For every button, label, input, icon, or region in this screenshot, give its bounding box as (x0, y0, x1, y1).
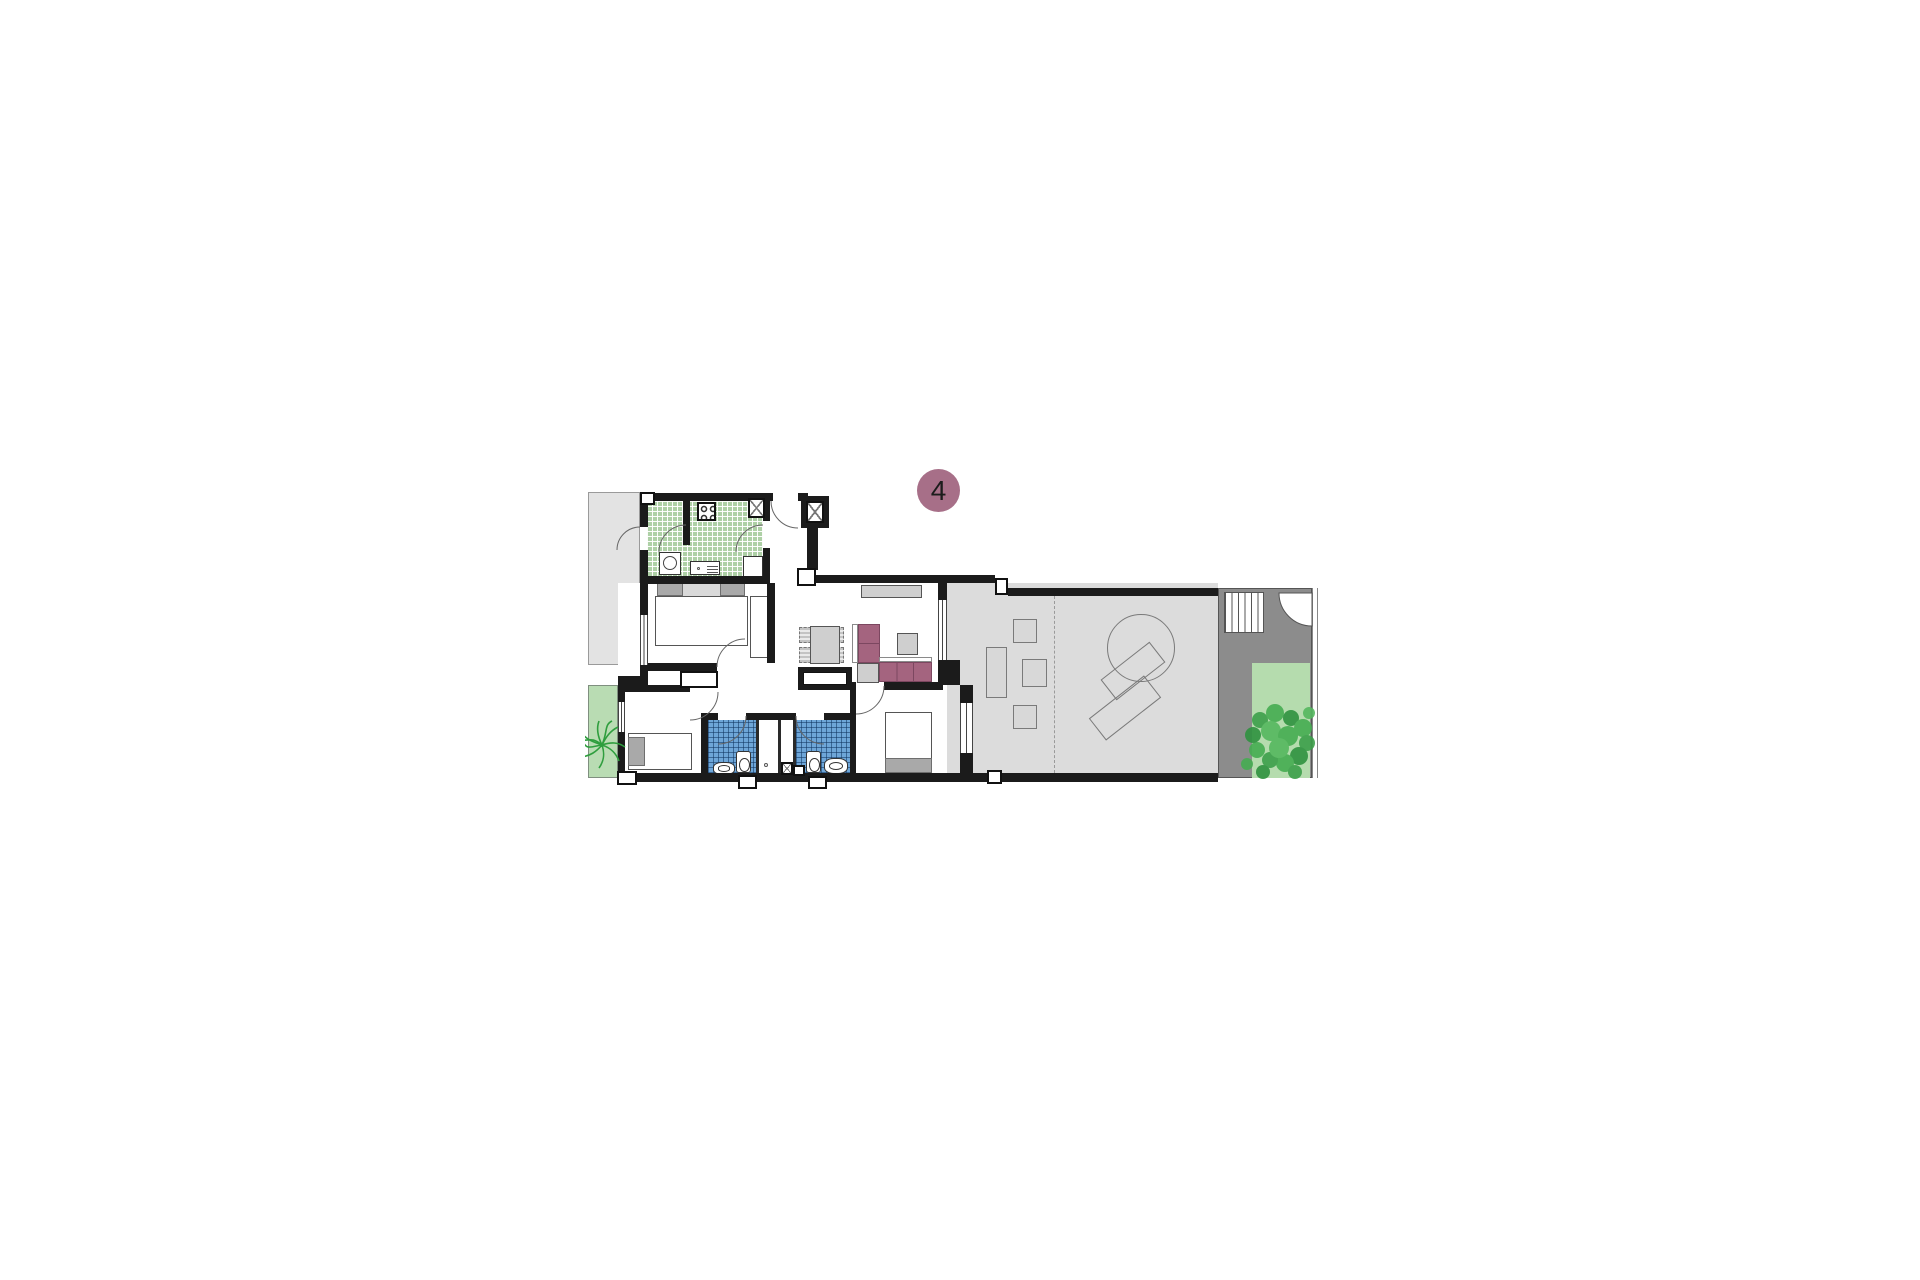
bath-cabinet (793, 765, 805, 776)
toilet (736, 751, 751, 773)
terrace-chair (1013, 705, 1037, 729)
terrace-divider (1054, 596, 1055, 773)
floor-plan (585, 488, 1317, 788)
window (640, 615, 648, 665)
wall (683, 493, 690, 545)
wall (756, 720, 759, 773)
yard-border-strip (1312, 588, 1318, 778)
terrace-table (1022, 659, 1047, 687)
sofa (879, 662, 932, 682)
washing-machine (659, 552, 681, 575)
washbasin (824, 758, 848, 774)
shower-tray (781, 762, 793, 775)
sofa (858, 624, 880, 663)
wall (850, 690, 856, 773)
pillar (987, 770, 1002, 784)
wall (852, 682, 856, 690)
sofa-corner-ottoman (857, 663, 879, 683)
terrace-chair (1013, 619, 1037, 643)
window (960, 703, 973, 753)
page: 4 (0, 0, 1920, 1280)
kitchen-window (748, 498, 765, 518)
pillow (885, 758, 932, 773)
palm-patio (588, 685, 618, 778)
pillar (640, 492, 655, 505)
floor-drain (764, 763, 768, 767)
wall (640, 663, 717, 671)
wall (824, 713, 850, 720)
single-bed (885, 712, 932, 760)
wall (960, 685, 973, 703)
pillar (797, 568, 816, 586)
wall (708, 713, 718, 720)
wall (640, 576, 770, 584)
wall (807, 528, 818, 570)
double-bed-center (681, 583, 722, 596)
wall (884, 682, 943, 690)
dining-table (810, 626, 840, 664)
wall (746, 713, 796, 720)
wall (767, 583, 775, 663)
vent-shaft-window (806, 501, 824, 523)
exterior-unit (808, 776, 827, 789)
pillar (617, 771, 637, 785)
toilet (806, 751, 821, 773)
washer-drum-icon (663, 556, 677, 570)
kitchen-sink (690, 561, 720, 575)
faucet-icon (697, 567, 700, 570)
wall (701, 713, 708, 773)
terrace-bench (986, 647, 1007, 698)
pillow (628, 737, 645, 766)
wall (814, 575, 995, 583)
wall (1008, 588, 1218, 596)
double-bed (655, 596, 748, 646)
pillar (995, 578, 1008, 595)
wall (938, 583, 947, 600)
stairs (1224, 592, 1264, 633)
wall (618, 676, 648, 685)
wall (763, 548, 770, 584)
pillow (657, 583, 683, 596)
drainboard-icon (707, 564, 718, 573)
kitchen-counter (743, 556, 763, 577)
window (938, 600, 947, 660)
wall (618, 773, 1218, 782)
pillow (720, 583, 745, 596)
wall-niche (803, 672, 847, 685)
garden-patch (1252, 663, 1310, 778)
stove (697, 502, 716, 521)
wardrobe (750, 596, 768, 658)
exterior-unit (738, 775, 757, 789)
hall-closet (680, 671, 718, 688)
sideboard (861, 585, 922, 598)
coffee-table (897, 633, 918, 655)
unit-badge: 4 (917, 469, 960, 512)
window (618, 702, 625, 732)
wall (770, 493, 773, 501)
